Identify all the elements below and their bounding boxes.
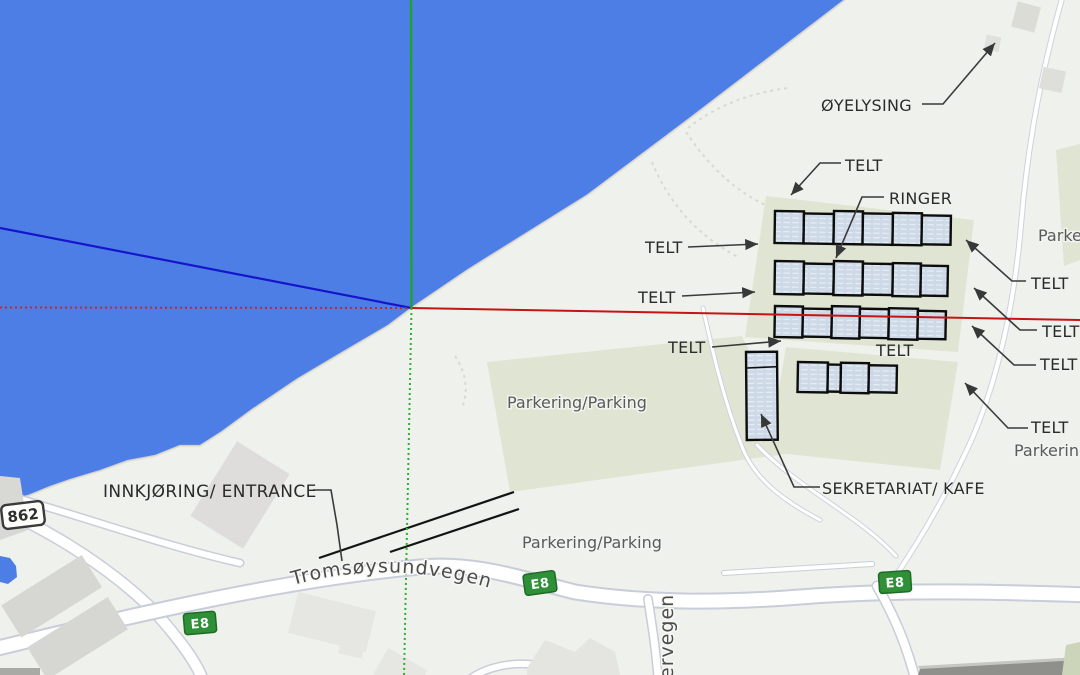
tent-cell bbox=[840, 363, 869, 393]
tent-cell bbox=[862, 213, 892, 244]
tent-cell bbox=[831, 306, 860, 339]
tent-cell bbox=[921, 215, 950, 244]
tent-row-small bbox=[797, 362, 897, 394]
map-canvas: E8 E8 E8 862 ØYELYSING TELT RINGER TELT … bbox=[0, 0, 1080, 675]
road-862-badge: 862 bbox=[1, 501, 46, 530]
axis-green-line bbox=[411, 0, 412, 308]
label-ervegen: ervegen bbox=[656, 594, 678, 675]
e8-badge-center: E8 bbox=[523, 570, 558, 595]
tent-cell bbox=[774, 261, 804, 295]
label-parkering-right-top: Parkering bbox=[1038, 226, 1080, 245]
label-innkjoring: INNKJØRING/ ENTRANCE bbox=[103, 482, 317, 502]
label-parkering-right-bottom: Parkering bbox=[1014, 441, 1080, 460]
tent-cell bbox=[892, 213, 921, 245]
label-telt-right-3: TELT bbox=[1039, 355, 1078, 374]
tent-cell bbox=[827, 365, 840, 392]
label-sekretariat: SEKRETARIAT/ KAFE bbox=[822, 479, 985, 498]
tent-cell bbox=[917, 311, 946, 340]
road-862-text: 862 bbox=[6, 505, 39, 527]
label-ringer: RINGER bbox=[889, 189, 952, 208]
e8-badge-east: E8 bbox=[878, 570, 911, 593]
label-parkering-middle: Parkering/Parking bbox=[507, 393, 647, 412]
tent-cell bbox=[803, 264, 834, 295]
label-telt-top: TELT bbox=[844, 156, 883, 175]
e8-badge-text: E8 bbox=[190, 616, 210, 633]
e8-badge-text: E8 bbox=[885, 575, 905, 591]
tent-cell bbox=[920, 266, 948, 296]
site-plan-svg: E8 E8 E8 862 ØYELYSING TELT RINGER TELT … bbox=[0, 0, 1080, 675]
label-parkering-south: Parkering/Parking bbox=[522, 533, 662, 552]
label-oyelysing: ØYELYSING bbox=[821, 96, 912, 115]
tent-cell bbox=[803, 213, 833, 243]
label-telt-right-1: TELT bbox=[1030, 274, 1069, 293]
label-telt-left-1: TELT bbox=[644, 238, 683, 257]
tent-row-1 bbox=[774, 210, 950, 246]
slab-southwest-corner bbox=[0, 668, 40, 675]
label-telt-right-2: TELT bbox=[1041, 322, 1080, 341]
e8-badge-text: E8 bbox=[530, 576, 551, 593]
tent-cell bbox=[859, 309, 889, 339]
label-telt-right-4: TELT bbox=[1030, 418, 1069, 437]
tent-cell bbox=[797, 362, 828, 393]
tent-cell bbox=[862, 264, 893, 296]
tent-cell bbox=[888, 308, 918, 340]
building-northeast-3 bbox=[1039, 67, 1066, 93]
tent-cell bbox=[774, 211, 803, 243]
tent-cell bbox=[802, 309, 832, 338]
label-telt-left-3: TELT bbox=[667, 338, 706, 357]
label-telt-left-2: TELT bbox=[637, 288, 676, 307]
tent-cell bbox=[892, 263, 921, 296]
sekretariat-rect bbox=[746, 352, 778, 440]
e8-badge-west: E8 bbox=[183, 611, 217, 635]
label-telt-middle: TELT bbox=[875, 341, 914, 360]
building-northeast-2 bbox=[984, 35, 1001, 52]
tent-cell bbox=[833, 261, 863, 296]
tent-cell bbox=[868, 365, 896, 392]
tent-row-2 bbox=[774, 260, 948, 297]
tent-cell bbox=[774, 306, 803, 338]
sekretariat-building bbox=[746, 352, 778, 440]
tent-row-3 bbox=[774, 305, 946, 340]
